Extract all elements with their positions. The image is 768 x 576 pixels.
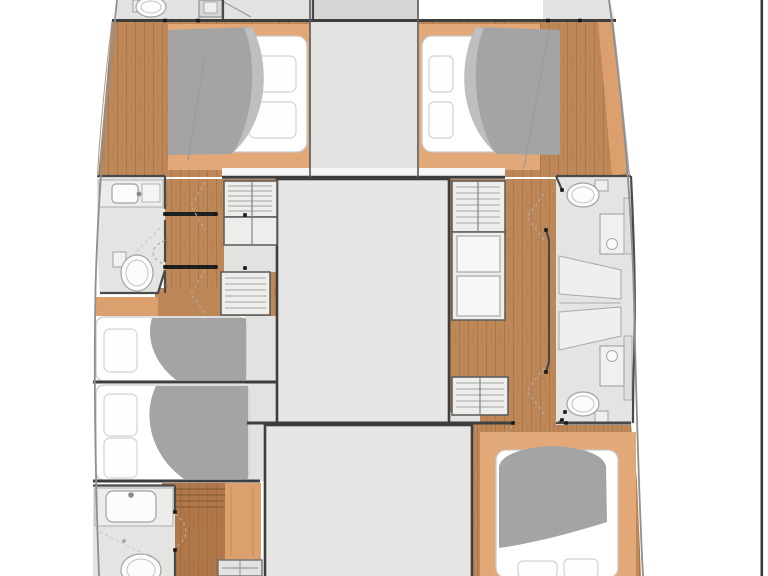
toilet-bowl bbox=[136, 0, 166, 17]
faucet bbox=[137, 192, 142, 197]
counter-hatch bbox=[142, 184, 160, 202]
bedside-shelf-port bbox=[245, 316, 277, 425]
pillow bbox=[518, 561, 557, 576]
toilet-tank bbox=[595, 411, 608, 422]
catamaran-floorplan bbox=[0, 0, 768, 576]
saloon-aft-block bbox=[265, 425, 472, 576]
hinge-dot bbox=[163, 19, 167, 23]
hinge-dot bbox=[564, 421, 568, 425]
hinge-dot bbox=[511, 421, 515, 425]
pillow bbox=[429, 102, 453, 138]
saloon-passage-bow-step bbox=[310, 0, 418, 21]
forward-cabin-port-bed bbox=[168, 27, 307, 155]
forward-cabin-starboard-bed bbox=[422, 27, 560, 155]
shower-drain bbox=[122, 539, 126, 543]
pillow bbox=[104, 438, 137, 478]
saloon-main-block bbox=[277, 179, 449, 423]
saloon-forward-passage bbox=[310, 0, 418, 177]
hinge-dot bbox=[560, 418, 564, 422]
saloon-front-sill bbox=[222, 168, 505, 177]
hinge-dot bbox=[243, 266, 247, 270]
pillow bbox=[429, 56, 453, 92]
wardrobe-port-2 bbox=[224, 217, 277, 245]
pillow bbox=[564, 559, 598, 576]
shelf-port-aft bbox=[95, 297, 158, 316]
heads-starboard-floor bbox=[556, 175, 635, 425]
hinge-dot bbox=[544, 370, 548, 374]
faucet bbox=[128, 492, 134, 498]
cabinet-gap-port bbox=[224, 245, 277, 272]
aft-cabin-starboard-bed bbox=[496, 446, 618, 576]
cabinet-port-aft-desk bbox=[225, 483, 261, 560]
bow-deck-starboard bbox=[543, 0, 615, 19]
hinge-dot bbox=[163, 212, 167, 216]
pillow bbox=[104, 394, 137, 436]
hinge-dot bbox=[578, 19, 582, 23]
sink-unit-port-aft bbox=[218, 560, 262, 576]
floorplan-canvas bbox=[0, 0, 768, 576]
aft-cabin-port-upper-bed bbox=[96, 317, 246, 381]
washbasin bbox=[112, 184, 138, 203]
hinge-dot bbox=[546, 19, 550, 23]
bedside-shelf-port-lower bbox=[247, 425, 265, 481]
hinge-dot bbox=[214, 265, 218, 269]
hinge-dot bbox=[196, 19, 200, 23]
hinge-dot bbox=[163, 265, 167, 269]
hinge-dot bbox=[560, 188, 564, 192]
hinge-dot bbox=[544, 228, 548, 232]
washbasin bbox=[204, 2, 217, 13]
hinge-dot bbox=[173, 548, 177, 552]
aft-cabin-port-lower-bed bbox=[96, 385, 249, 480]
pillow bbox=[104, 329, 137, 372]
washbasin bbox=[607, 351, 618, 362]
appliance-door-2 bbox=[457, 276, 500, 316]
page-edge-line bbox=[761, 0, 764, 576]
washbasin bbox=[607, 239, 618, 250]
hinge-dot bbox=[173, 510, 177, 514]
hinge-dot bbox=[243, 213, 247, 217]
hull-side-counter bbox=[624, 336, 632, 400]
hinge-dot bbox=[563, 410, 567, 414]
appliance-door-1 bbox=[457, 236, 500, 272]
hinge-dot bbox=[214, 212, 218, 216]
